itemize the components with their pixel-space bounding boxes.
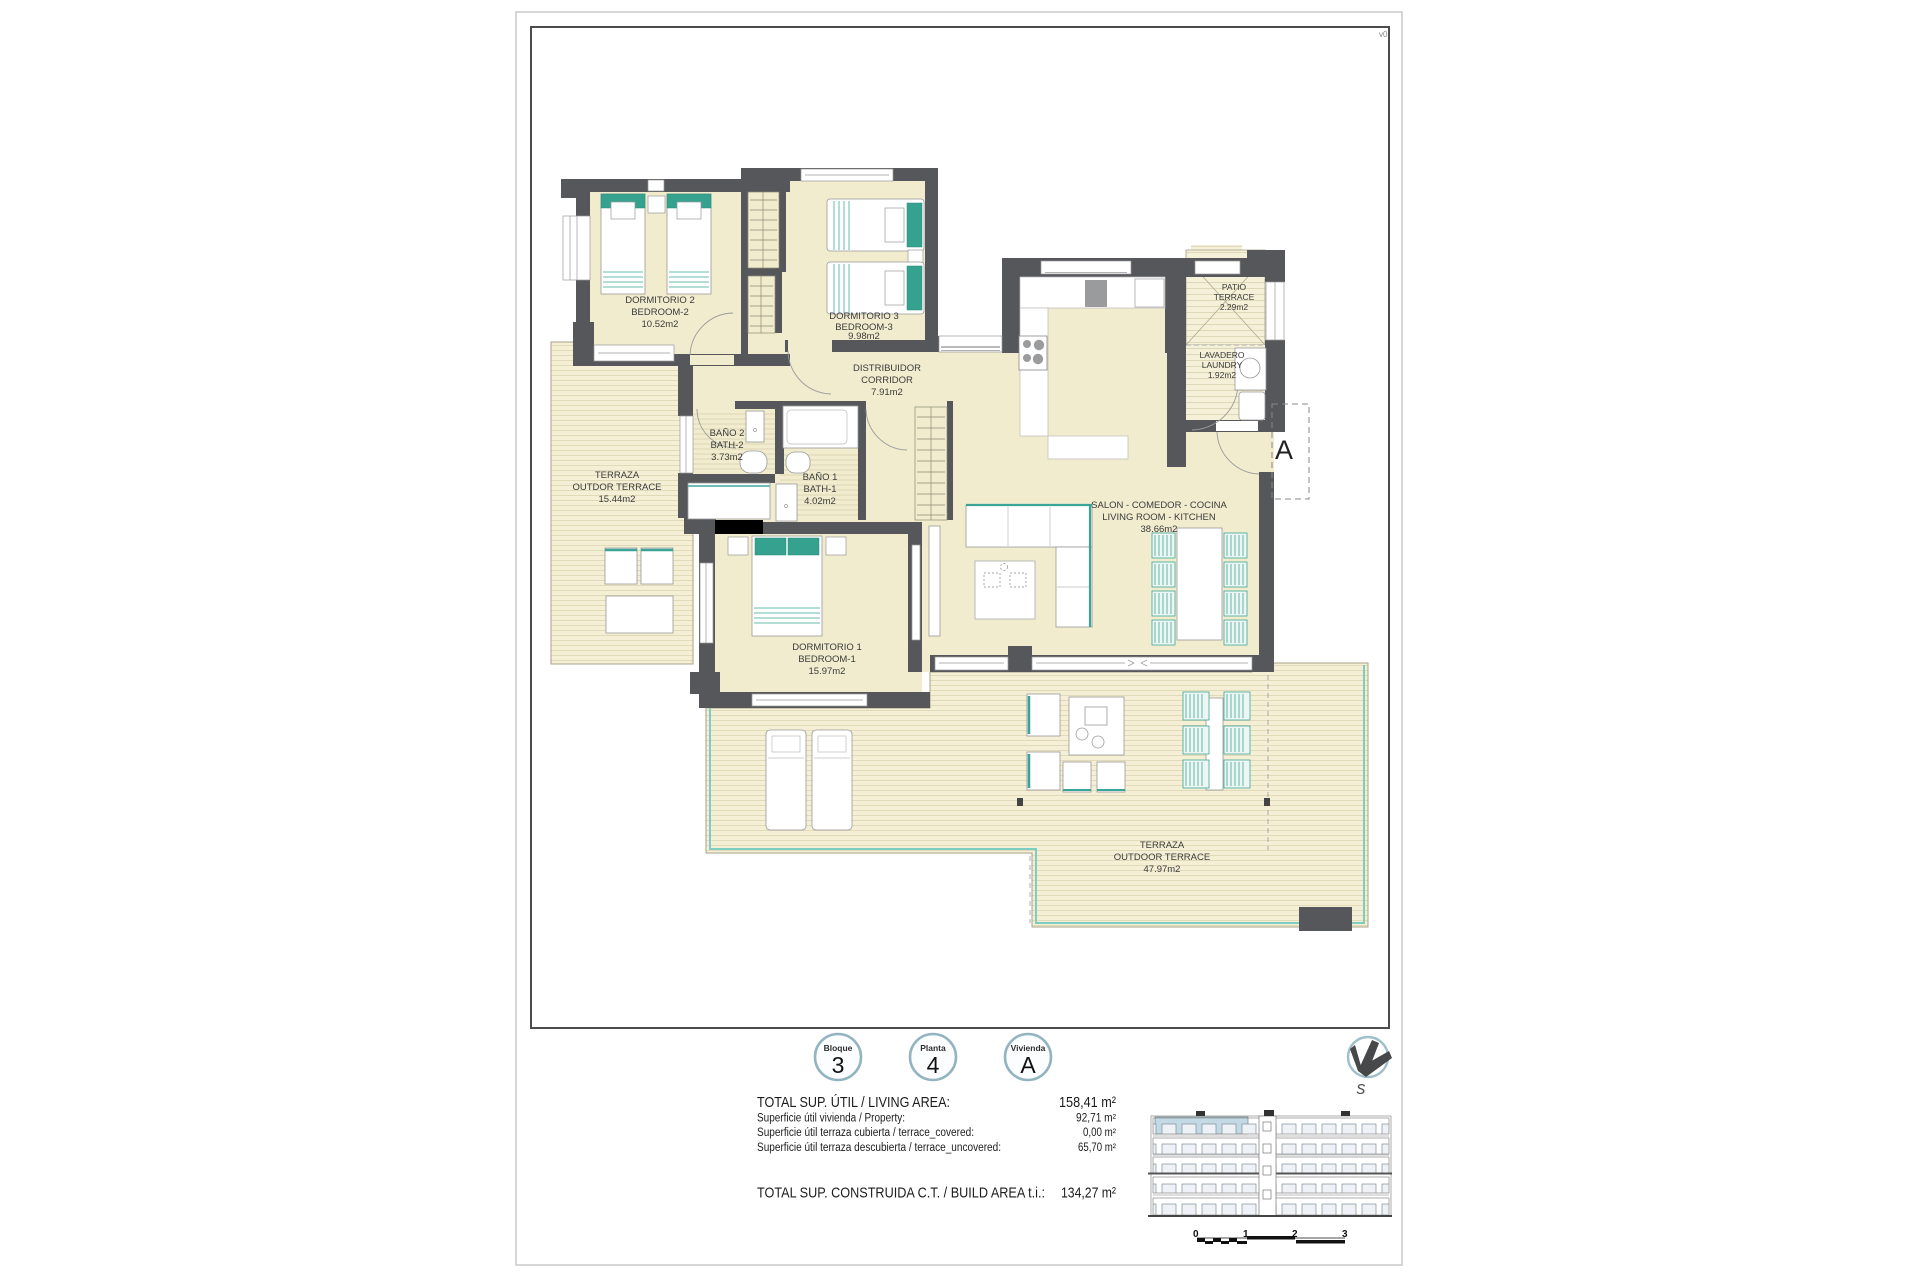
svg-text:DORMITORIO 2: DORMITORIO 2 bbox=[625, 295, 695, 306]
svg-text:15.44m2: 15.44m2 bbox=[599, 494, 636, 505]
svg-text:v0: v0 bbox=[1379, 30, 1388, 39]
svg-text:3.73m2: 3.73m2 bbox=[711, 452, 743, 463]
svg-text:BATH-2: BATH-2 bbox=[710, 440, 743, 451]
svg-text:TERRACE: TERRACE bbox=[1214, 292, 1255, 302]
svg-text:0,00 m²: 0,00 m² bbox=[1083, 1127, 1116, 1139]
svg-text:134,27 m²: 134,27 m² bbox=[1061, 1185, 1116, 1202]
svg-text:38.66m2: 38.66m2 bbox=[1141, 524, 1178, 535]
svg-text:BEDROOM-2: BEDROOM-2 bbox=[631, 307, 689, 318]
svg-text:4.02m2: 4.02m2 bbox=[804, 496, 836, 507]
svg-text:BEDROOM-1: BEDROOM-1 bbox=[798, 654, 856, 665]
svg-text:92,71 m²: 92,71 m² bbox=[1076, 1113, 1116, 1125]
svg-text:1: 1 bbox=[1243, 1229, 1249, 1240]
svg-text:3: 3 bbox=[832, 1052, 845, 1078]
svg-text:9.98m2: 9.98m2 bbox=[848, 331, 880, 342]
svg-text:0: 0 bbox=[1193, 1229, 1199, 1240]
svg-text:DORMITORIO 3: DORMITORIO 3 bbox=[829, 311, 899, 322]
svg-text:LAUNDRY: LAUNDRY bbox=[1202, 360, 1243, 370]
svg-text:BAÑO 1: BAÑO 1 bbox=[803, 472, 838, 483]
svg-text:158,41 m²: 158,41 m² bbox=[1059, 1094, 1116, 1111]
svg-text:Superficie útil vivienda / Pro: Superficie útil vivienda / Property: bbox=[757, 1113, 905, 1125]
svg-text:65,70 m²: 65,70 m² bbox=[1078, 1142, 1116, 1154]
svg-text:BAÑO 2: BAÑO 2 bbox=[710, 428, 745, 439]
svg-text:7.91m2: 7.91m2 bbox=[871, 387, 903, 398]
svg-text:OUTDOOR TERRACE: OUTDOOR TERRACE bbox=[1114, 852, 1210, 863]
svg-text:4: 4 bbox=[927, 1052, 940, 1078]
svg-text:TERRAZA: TERRAZA bbox=[595, 470, 640, 481]
svg-text:OUTDOR TERRACE: OUTDOR TERRACE bbox=[572, 482, 661, 493]
svg-text:CORRIDOR: CORRIDOR bbox=[861, 375, 913, 386]
svg-text:A: A bbox=[1275, 435, 1293, 465]
svg-text:TOTAL SUP. ÚTIL / LIVING AREA:: TOTAL SUP. ÚTIL / LIVING AREA: bbox=[757, 1094, 950, 1111]
svg-text:15.97m2: 15.97m2 bbox=[809, 666, 846, 677]
svg-text:LIVING ROOM - KITCHEN: LIVING ROOM - KITCHEN bbox=[1102, 512, 1216, 523]
svg-text:SALON - COMEDOR - COCINA: SALON - COMEDOR - COCINA bbox=[1091, 500, 1227, 511]
svg-text:DORMITORIO 1: DORMITORIO 1 bbox=[792, 642, 862, 653]
svg-text:TOTAL SUP. CONSTRUIDA C.T. / B: TOTAL SUP. CONSTRUIDA C.T. / BUILD AREA … bbox=[757, 1185, 1045, 1202]
svg-text:A: A bbox=[1020, 1052, 1036, 1078]
svg-text:10.52m2: 10.52m2 bbox=[642, 319, 679, 330]
svg-text:Superficie útil terraza descub: Superficie útil terraza descubierta / te… bbox=[757, 1142, 1001, 1154]
svg-text:BATH-1: BATH-1 bbox=[803, 484, 836, 495]
svg-text:47.97m2: 47.97m2 bbox=[1144, 864, 1181, 875]
svg-text:1.92m2: 1.92m2 bbox=[1208, 370, 1237, 380]
svg-text:3: 3 bbox=[1342, 1229, 1348, 1240]
svg-text:PATIO: PATIO bbox=[1222, 282, 1247, 292]
svg-text:DISTRIBUIDOR: DISTRIBUIDOR bbox=[853, 363, 921, 374]
svg-text:TERRAZA: TERRAZA bbox=[1140, 840, 1185, 851]
svg-text:LAVADERO: LAVADERO bbox=[1199, 350, 1244, 360]
svg-text:2: 2 bbox=[1292, 1229, 1298, 1240]
svg-text:s: s bbox=[1357, 1078, 1366, 1098]
svg-text:2.29m2: 2.29m2 bbox=[1220, 302, 1249, 312]
svg-text:Superficie útil terraza cubier: Superficie útil terraza cubierta / terra… bbox=[757, 1127, 974, 1139]
